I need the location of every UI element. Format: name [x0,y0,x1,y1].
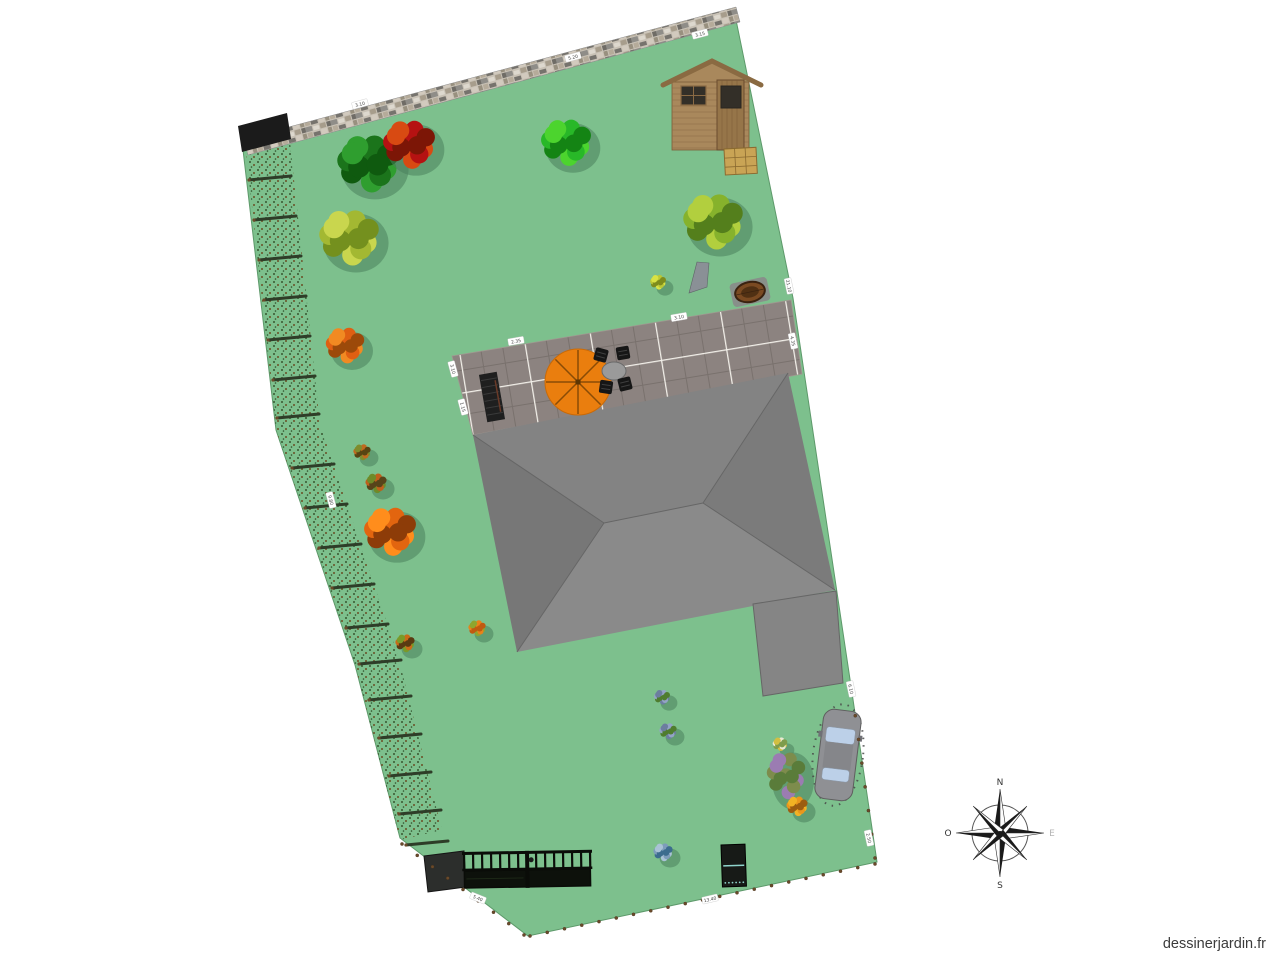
chair-3[interactable] [599,380,614,395]
composter[interactable] [721,844,746,887]
garden-table[interactable] [602,362,626,380]
compass-rose: NSOE [944,778,1055,891]
compass-north-label: N [997,778,1004,788]
garage-extension[interactable] [753,591,843,696]
shed-door-window [721,86,741,108]
wall-block[interactable] [424,851,466,892]
compass-east-label: E [1049,829,1055,839]
compass-south-label: S [997,881,1003,891]
chair-2[interactable] [615,345,630,360]
garden-plan: 3.105.203.1521.104.356.102.505.4013.409.… [0,0,1280,960]
compass-west-label: O [944,829,951,839]
shed-window [681,86,706,105]
wooden-crate[interactable] [724,147,757,175]
gate[interactable] [462,850,593,889]
watermark: dessinerjardin.fr [1163,936,1266,952]
garden-plan-canvas: 3.105.203.1521.104.356.102.505.4013.409.… [0,0,1280,960]
